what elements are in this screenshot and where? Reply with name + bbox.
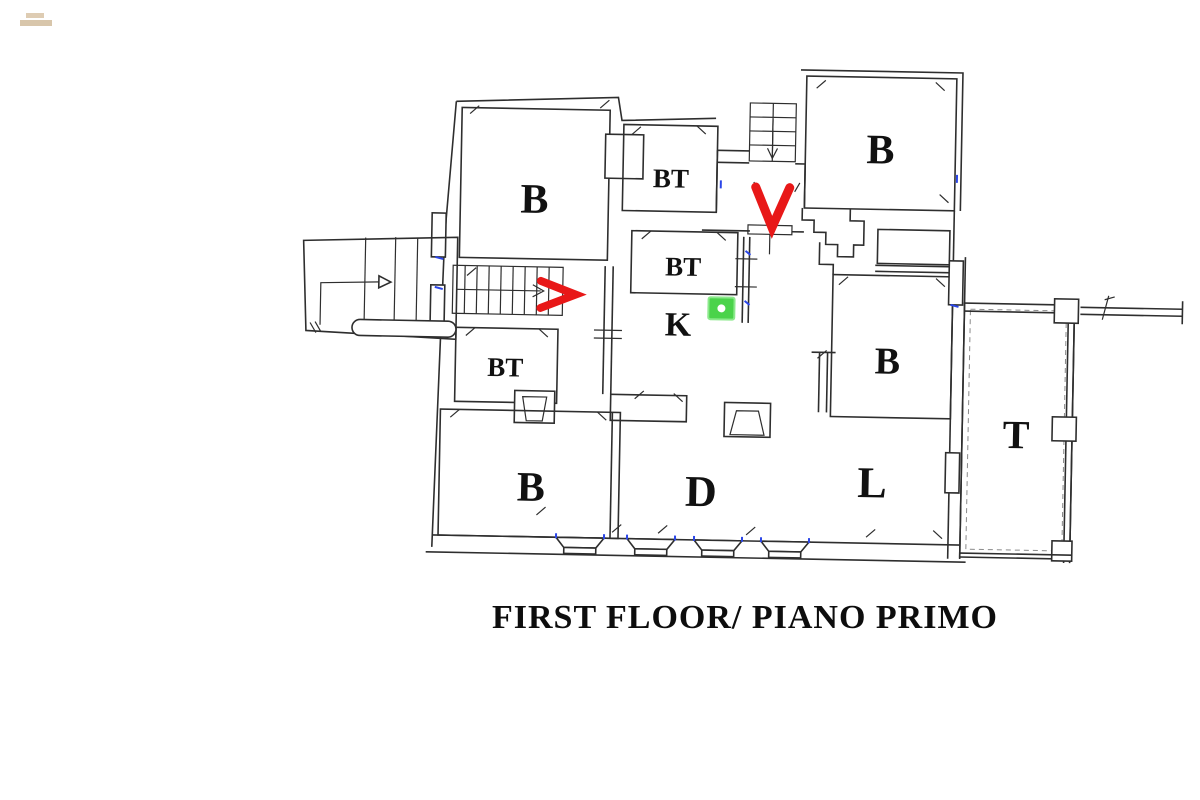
label-living-room: L [857,458,887,508]
floor-plan-drawing: B BT B BT K BT B D L B T FIRST FLOOR/ PI… [0,0,1200,800]
window-right-1 [949,261,964,305]
staircase-top [717,102,806,164]
stair-right-arrow [457,289,541,291]
room-bedroom-top-left [459,107,644,260]
label-dining-room: D [685,467,718,517]
label-bathroom-top: BT [653,163,690,194]
terrace-structure [960,293,1183,565]
position-marker[interactable] [708,297,734,319]
label-bathroom-left: BT [487,352,524,383]
terrace-pillar-top [1054,299,1078,323]
dining-fireplace [724,402,771,437]
terrace-pillar-bottom [1052,541,1072,561]
label-bedroom-bottom-left: B [516,465,545,512]
label-bedroom-top-left: B [520,177,549,224]
stove-niche [514,390,555,423]
label-terrace: T [1002,412,1030,458]
window-bottom-2 [627,539,675,556]
window-bottom-1 [556,537,604,554]
label-bathroom-middle: BT [665,251,702,282]
partition-wall [610,394,686,421]
railing-extension [1080,295,1182,324]
corridor-walls [592,266,689,422]
label-bedroom-right: B [874,340,900,382]
terrace-pillar-middle [1052,417,1076,441]
plan-title: FIRST FLOOR/ PIANO PRIMO [492,599,998,636]
window-left-1 [431,213,446,257]
stair-direction-marker[interactable] [540,281,576,309]
window-bottom-4 [761,541,809,558]
stair-down-arrow [772,119,773,157]
label-kitchen: K [665,306,693,344]
entrance-v-marker[interactable] [755,187,790,228]
entrance-stepped-wall [801,208,864,257]
label-bedroom-top-right: B [866,127,895,174]
window-bottom-3 [694,540,742,557]
closet-right [877,229,950,264]
floor-plan-page: B BT B BT K BT B D L B T FIRST FLOOR/ PI… [0,0,1200,800]
external-beam [352,319,456,337]
window-right-2 [945,453,960,493]
